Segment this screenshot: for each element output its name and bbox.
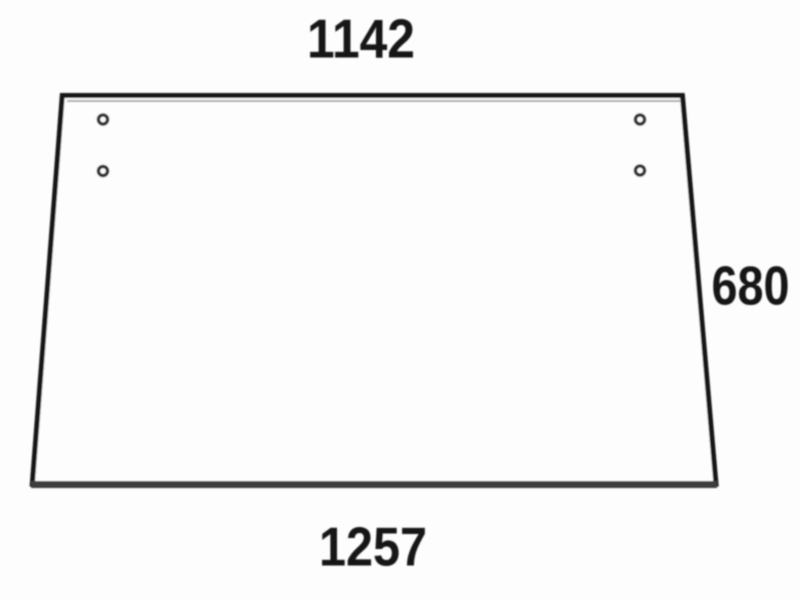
svg-text:680: 680 — [712, 255, 790, 317]
svg-text:1142: 1142 — [307, 8, 415, 70]
svg-text:1257: 1257 — [319, 516, 427, 578]
